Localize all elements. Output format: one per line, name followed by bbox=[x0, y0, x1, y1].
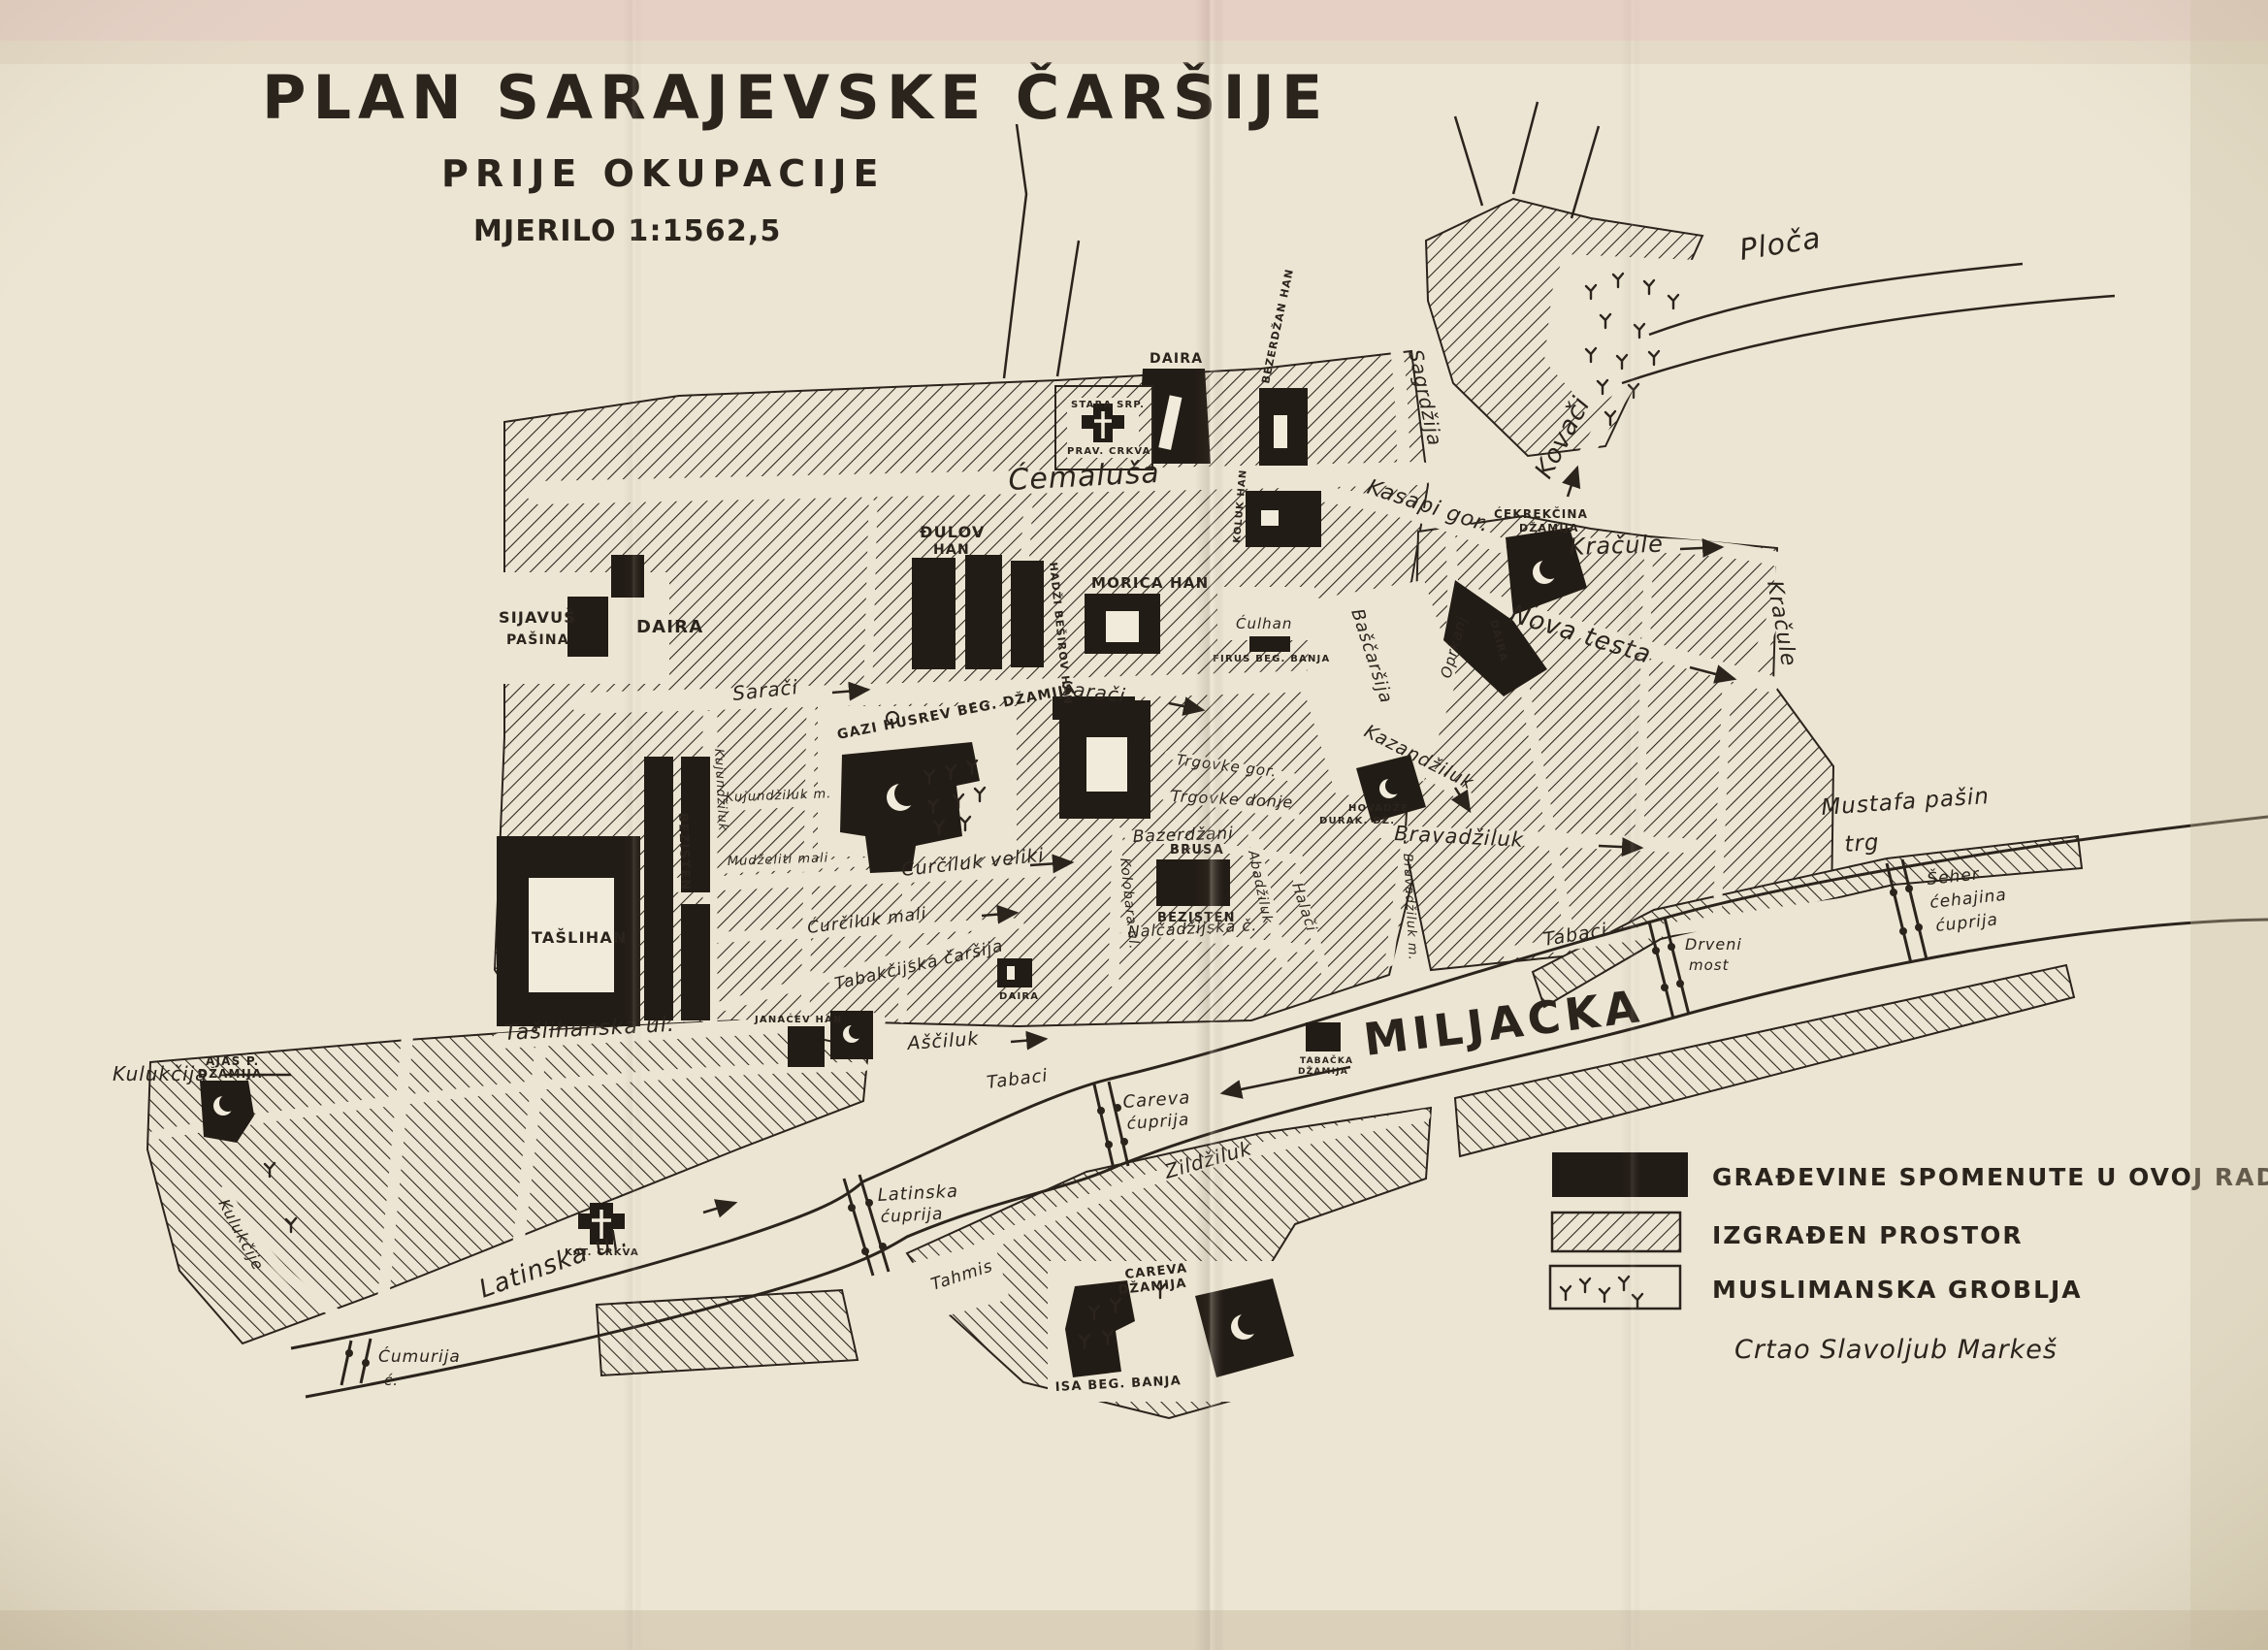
scanned-map-page: Ćemaluša Kasapi gor. Sagrdžija Kovači Pl… bbox=[0, 0, 2268, 1650]
map-canvas: Ćemaluša Kasapi gor. Sagrdžija Kovači Pl… bbox=[0, 0, 2268, 1650]
paper-folds bbox=[0, 0, 2268, 1650]
